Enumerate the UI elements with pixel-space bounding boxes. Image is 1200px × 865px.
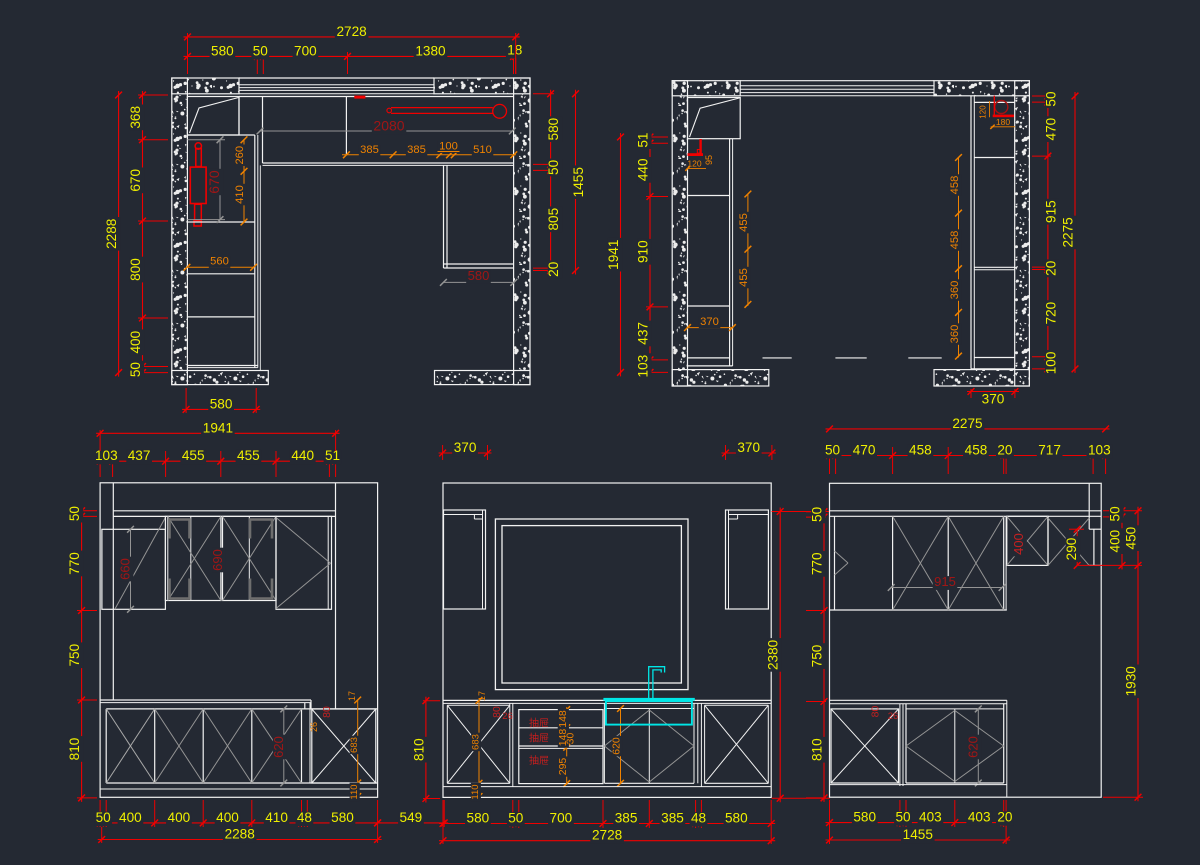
- svg-text:抽屉: 抽屉: [529, 716, 549, 729]
- svg-text:110: 110: [349, 784, 360, 799]
- svg-text:30: 30: [565, 733, 577, 745]
- svg-text:683: 683: [470, 734, 481, 750]
- svg-text:810: 810: [67, 737, 82, 760]
- svg-text:26: 26: [888, 711, 899, 722]
- svg-text:180: 180: [996, 117, 1010, 127]
- svg-text:370: 370: [700, 316, 719, 328]
- svg-text:368: 368: [128, 106, 143, 129]
- svg-text:110: 110: [470, 784, 481, 799]
- svg-text:48: 48: [297, 810, 312, 825]
- svg-text:50: 50: [895, 810, 911, 825]
- svg-text:100: 100: [439, 141, 458, 153]
- svg-text:2288: 2288: [225, 827, 255, 842]
- svg-text:720: 720: [1043, 301, 1058, 324]
- svg-text:20: 20: [1043, 260, 1058, 276]
- svg-text:620: 620: [271, 736, 286, 758]
- svg-text:17: 17: [477, 691, 487, 701]
- svg-text:51: 51: [325, 448, 340, 463]
- svg-text:458: 458: [965, 443, 988, 458]
- svg-text:2275: 2275: [1061, 217, 1076, 247]
- svg-text:80: 80: [870, 706, 882, 718]
- svg-text:385: 385: [360, 144, 379, 156]
- svg-text:385: 385: [661, 811, 684, 826]
- svg-text:51: 51: [636, 133, 651, 148]
- svg-text:103: 103: [636, 355, 651, 378]
- svg-text:360: 360: [949, 281, 961, 300]
- svg-text:50: 50: [825, 443, 841, 458]
- svg-text:20: 20: [546, 261, 561, 277]
- svg-text:400: 400: [128, 330, 143, 353]
- svg-text:50: 50: [128, 362, 143, 378]
- svg-text:403: 403: [968, 810, 991, 825]
- svg-text:400: 400: [1011, 533, 1026, 555]
- svg-text:18: 18: [507, 42, 522, 57]
- svg-text:370: 370: [982, 392, 1005, 407]
- svg-text:470: 470: [853, 443, 876, 458]
- svg-text:670: 670: [128, 169, 143, 192]
- svg-text:17: 17: [347, 691, 357, 701]
- svg-text:580: 580: [210, 396, 233, 411]
- svg-text:385: 385: [615, 811, 638, 826]
- svg-text:1455: 1455: [903, 827, 933, 842]
- svg-text:410: 410: [265, 810, 288, 825]
- svg-text:660: 660: [118, 558, 133, 580]
- svg-text:549: 549: [400, 810, 423, 825]
- svg-text:385: 385: [407, 144, 426, 156]
- svg-text:1455: 1455: [571, 167, 586, 197]
- svg-text:2728: 2728: [592, 828, 622, 843]
- svg-text:580: 580: [467, 811, 490, 826]
- svg-text:26: 26: [502, 711, 513, 722]
- svg-text:80: 80: [321, 706, 333, 718]
- svg-text:510: 510: [473, 144, 492, 156]
- svg-text:260: 260: [234, 146, 246, 165]
- svg-text:458: 458: [949, 231, 961, 250]
- svg-text:2380: 2380: [766, 639, 781, 670]
- svg-text:50: 50: [546, 159, 561, 175]
- svg-text:690: 690: [210, 549, 225, 571]
- svg-text:抽屉: 抽屉: [529, 754, 549, 767]
- svg-text:20: 20: [997, 443, 1013, 458]
- svg-text:455: 455: [182, 448, 205, 463]
- svg-text:抽屉: 抽屉: [529, 731, 549, 744]
- svg-text:700: 700: [294, 43, 317, 58]
- svg-text:450: 450: [1124, 526, 1139, 549]
- svg-text:700: 700: [550, 811, 573, 826]
- svg-text:915: 915: [1043, 200, 1058, 223]
- svg-text:620: 620: [965, 736, 980, 758]
- svg-text:290: 290: [1064, 537, 1079, 560]
- svg-text:455: 455: [738, 268, 750, 287]
- svg-text:103: 103: [1088, 443, 1111, 458]
- svg-text:437: 437: [128, 448, 151, 463]
- svg-text:717: 717: [1038, 443, 1061, 458]
- svg-text:400: 400: [168, 810, 191, 825]
- svg-text:48: 48: [691, 811, 706, 826]
- svg-text:26: 26: [309, 722, 319, 732]
- svg-text:580: 580: [331, 810, 354, 825]
- svg-text:1941: 1941: [606, 240, 621, 270]
- svg-text:580: 580: [853, 810, 876, 825]
- svg-text:458: 458: [949, 176, 961, 195]
- svg-text:470: 470: [1043, 117, 1058, 140]
- svg-text:95: 95: [704, 155, 714, 165]
- svg-text:100: 100: [1043, 351, 1058, 374]
- svg-text:120: 120: [979, 105, 988, 119]
- svg-text:410: 410: [234, 185, 246, 204]
- svg-text:580: 580: [546, 117, 561, 140]
- svg-text:455: 455: [237, 448, 260, 463]
- svg-text:148: 148: [557, 710, 569, 728]
- svg-text:2080: 2080: [373, 118, 404, 134]
- svg-text:1930: 1930: [1124, 666, 1139, 697]
- svg-text:295: 295: [557, 758, 569, 776]
- svg-text:2288: 2288: [104, 219, 119, 249]
- svg-text:2275: 2275: [952, 416, 982, 431]
- svg-text:50: 50: [67, 506, 82, 522]
- svg-text:800: 800: [128, 258, 143, 281]
- svg-text:50: 50: [810, 506, 825, 522]
- svg-text:770: 770: [810, 552, 825, 575]
- svg-text:370: 370: [737, 440, 760, 455]
- svg-text:810: 810: [411, 738, 426, 761]
- svg-text:370: 370: [454, 440, 477, 455]
- svg-text:437: 437: [636, 322, 651, 345]
- svg-text:440: 440: [291, 448, 314, 463]
- svg-text:403: 403: [919, 810, 942, 825]
- svg-text:440: 440: [636, 158, 651, 181]
- svg-text:50: 50: [1108, 506, 1123, 522]
- svg-text:750: 750: [67, 643, 82, 666]
- svg-text:620: 620: [611, 737, 623, 755]
- svg-text:915: 915: [934, 574, 956, 589]
- svg-text:400: 400: [1108, 529, 1123, 552]
- svg-text:80: 80: [491, 706, 503, 718]
- svg-text:670: 670: [206, 170, 222, 194]
- svg-text:810: 810: [810, 738, 825, 761]
- svg-text:2728: 2728: [336, 24, 366, 39]
- svg-text:50: 50: [253, 43, 269, 58]
- svg-text:580: 580: [725, 811, 748, 826]
- svg-text:400: 400: [216, 810, 239, 825]
- svg-text:910: 910: [636, 240, 651, 263]
- svg-text:1941: 1941: [203, 420, 233, 435]
- svg-text:360: 360: [949, 325, 961, 344]
- svg-text:580: 580: [468, 268, 490, 283]
- svg-text:458: 458: [909, 443, 932, 458]
- svg-text:50: 50: [96, 810, 112, 825]
- svg-text:400: 400: [119, 810, 142, 825]
- svg-text:580: 580: [211, 43, 234, 58]
- svg-text:560: 560: [210, 256, 229, 268]
- svg-text:50: 50: [508, 811, 524, 826]
- svg-text:683: 683: [349, 737, 360, 753]
- svg-text:20: 20: [997, 810, 1013, 825]
- svg-text:750: 750: [810, 644, 825, 667]
- svg-text:1380: 1380: [415, 43, 446, 58]
- svg-text:770: 770: [67, 552, 82, 575]
- svg-text:805: 805: [546, 208, 561, 231]
- svg-text:455: 455: [738, 213, 750, 232]
- svg-text:103: 103: [95, 448, 118, 463]
- svg-text:50: 50: [1043, 91, 1058, 107]
